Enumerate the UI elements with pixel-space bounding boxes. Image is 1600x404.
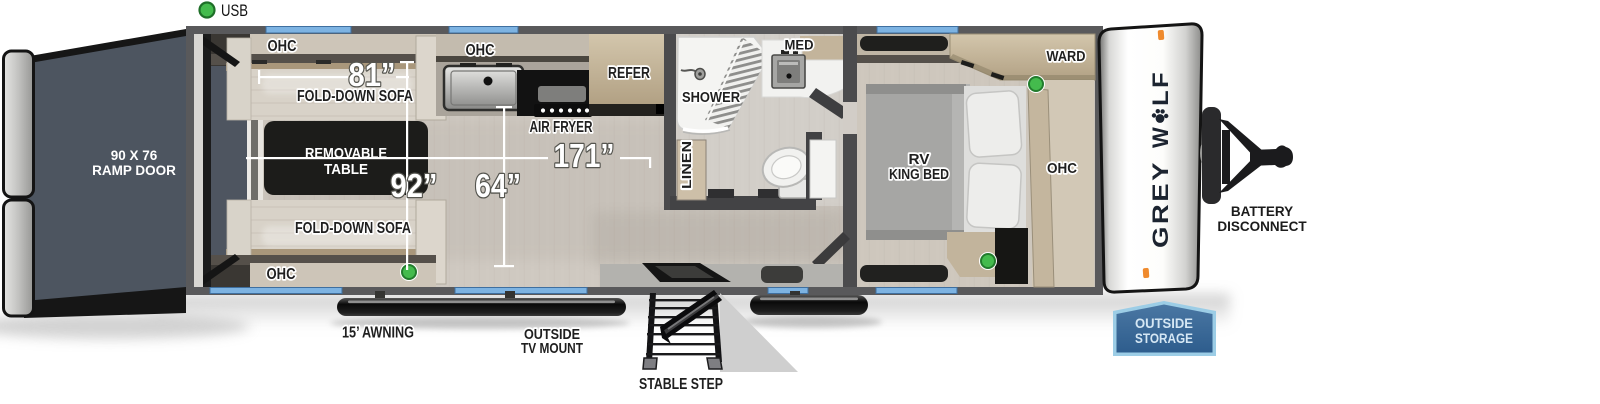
svg-text:92”: 92”: [391, 167, 438, 204]
svg-text:RV: RV: [909, 152, 930, 168]
svg-text:OHC: OHC: [267, 266, 296, 283]
svg-text:171”: 171”: [554, 137, 615, 174]
svg-text:64”: 64”: [475, 167, 521, 204]
svg-text:REMOVABLE: REMOVABLE: [305, 145, 387, 162]
svg-text:LF: LF: [1148, 70, 1173, 106]
svg-text:OHC: OHC: [466, 42, 495, 59]
svg-text:REFER: REFER: [608, 65, 650, 82]
svg-text:GREY: GREY: [1148, 160, 1173, 248]
svg-text:KING BED: KING BED: [889, 167, 949, 183]
svg-text:BATTERY: BATTERY: [1231, 204, 1293, 219]
svg-text:STORAGE: STORAGE: [1135, 331, 1193, 346]
svg-text:WARD: WARD: [1047, 49, 1086, 65]
svg-text:FOLD-DOWN SOFA: FOLD-DOWN SOFA: [295, 220, 411, 237]
svg-text:90 X 76: 90 X 76: [111, 148, 158, 163]
svg-text:SHOWER: SHOWER: [682, 90, 740, 106]
svg-text:FOLD-DOWN SOFA: FOLD-DOWN SOFA: [297, 88, 413, 105]
svg-text:TV MOUNT: TV MOUNT: [521, 340, 583, 357]
svg-text:MED: MED: [785, 37, 814, 53]
svg-text:TABLE: TABLE: [324, 161, 368, 178]
svg-text:RAMP DOOR: RAMP DOOR: [92, 163, 176, 178]
svg-text:OHC: OHC: [268, 38, 297, 55]
svg-text:OUTSIDE: OUTSIDE: [1135, 316, 1193, 331]
svg-text:USB: USB: [221, 2, 248, 20]
svg-text:W: W: [1148, 127, 1173, 148]
svg-text:LINEN: LINEN: [680, 141, 694, 189]
svg-text:OHC: OHC: [1047, 161, 1077, 177]
svg-text:STABLE STEP: STABLE STEP: [639, 376, 723, 393]
svg-text:15’ AWNING: 15’ AWNING: [342, 325, 414, 342]
svg-text:AIR FRYER: AIR FRYER: [530, 119, 593, 136]
svg-text:DISCONNECT: DISCONNECT: [1217, 219, 1307, 234]
